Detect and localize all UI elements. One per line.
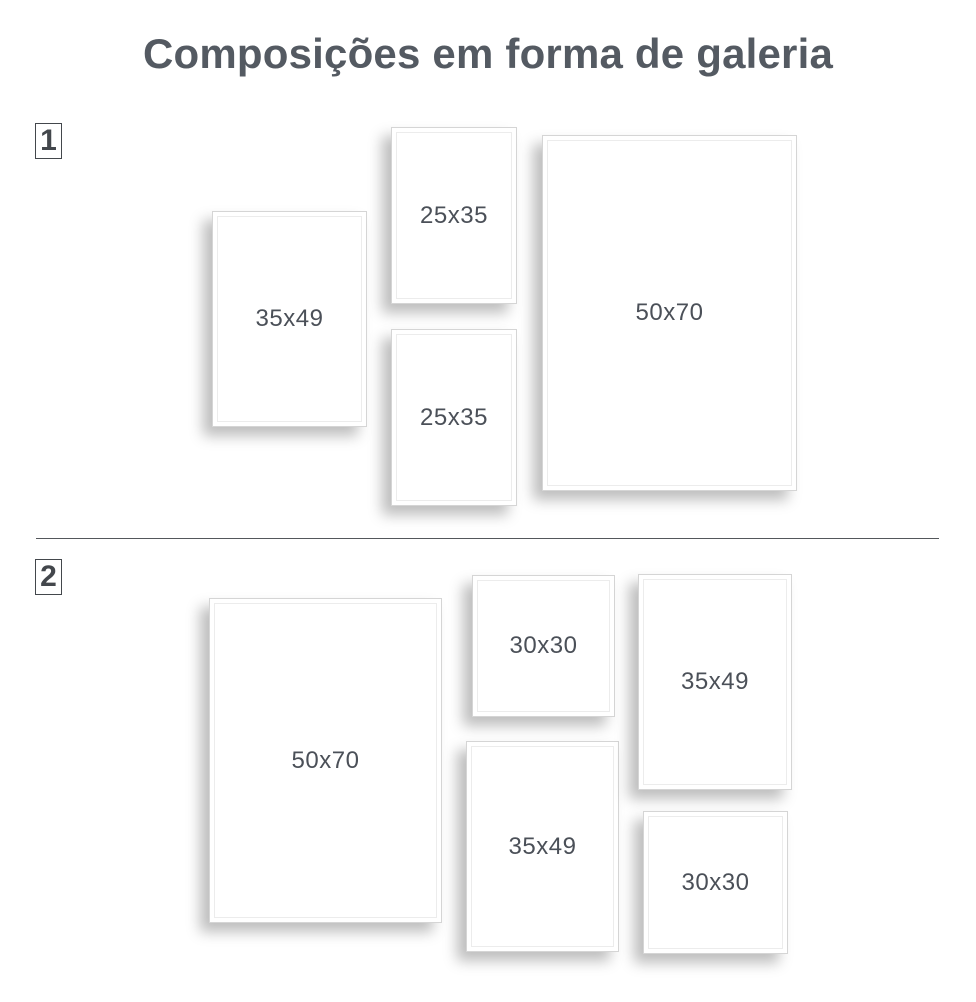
frame-size-label: 50x70 — [636, 299, 704, 327]
frame-25x35-bottom: 25x35 — [391, 329, 517, 506]
gallery-compositions-diagram: Composições em forma de galeria 1 35x49 … — [0, 0, 976, 1002]
section-1-number-badge: 1 — [35, 123, 62, 159]
frame-size-label: 35x49 — [509, 833, 577, 861]
frame-35x49-left: 35x49 — [212, 211, 367, 427]
section-2-number-badge: 2 — [35, 559, 62, 595]
frame-size-label: 30x30 — [510, 632, 578, 660]
frame-25x35-top: 25x35 — [391, 127, 517, 304]
frame-35x49-middle-bottom: 35x49 — [466, 741, 619, 952]
frame-size-label: 35x49 — [681, 668, 749, 696]
section-divider — [36, 538, 939, 539]
frame-30x30-middle-top: 30x30 — [472, 575, 615, 717]
frame-size-label: 30x30 — [682, 869, 750, 897]
frame-size-label: 25x35 — [420, 202, 488, 230]
frame-50x70-left: 50x70 — [209, 598, 442, 923]
frame-30x30-right-bottom: 30x30 — [643, 811, 788, 954]
page-title: Composições em forma de galeria — [0, 30, 976, 78]
frame-35x49-right-top: 35x49 — [638, 574, 792, 790]
frame-size-label: 25x35 — [420, 404, 488, 432]
frame-50x70-right: 50x70 — [542, 135, 797, 491]
frame-size-label: 50x70 — [292, 747, 360, 775]
frame-size-label: 35x49 — [256, 305, 324, 333]
